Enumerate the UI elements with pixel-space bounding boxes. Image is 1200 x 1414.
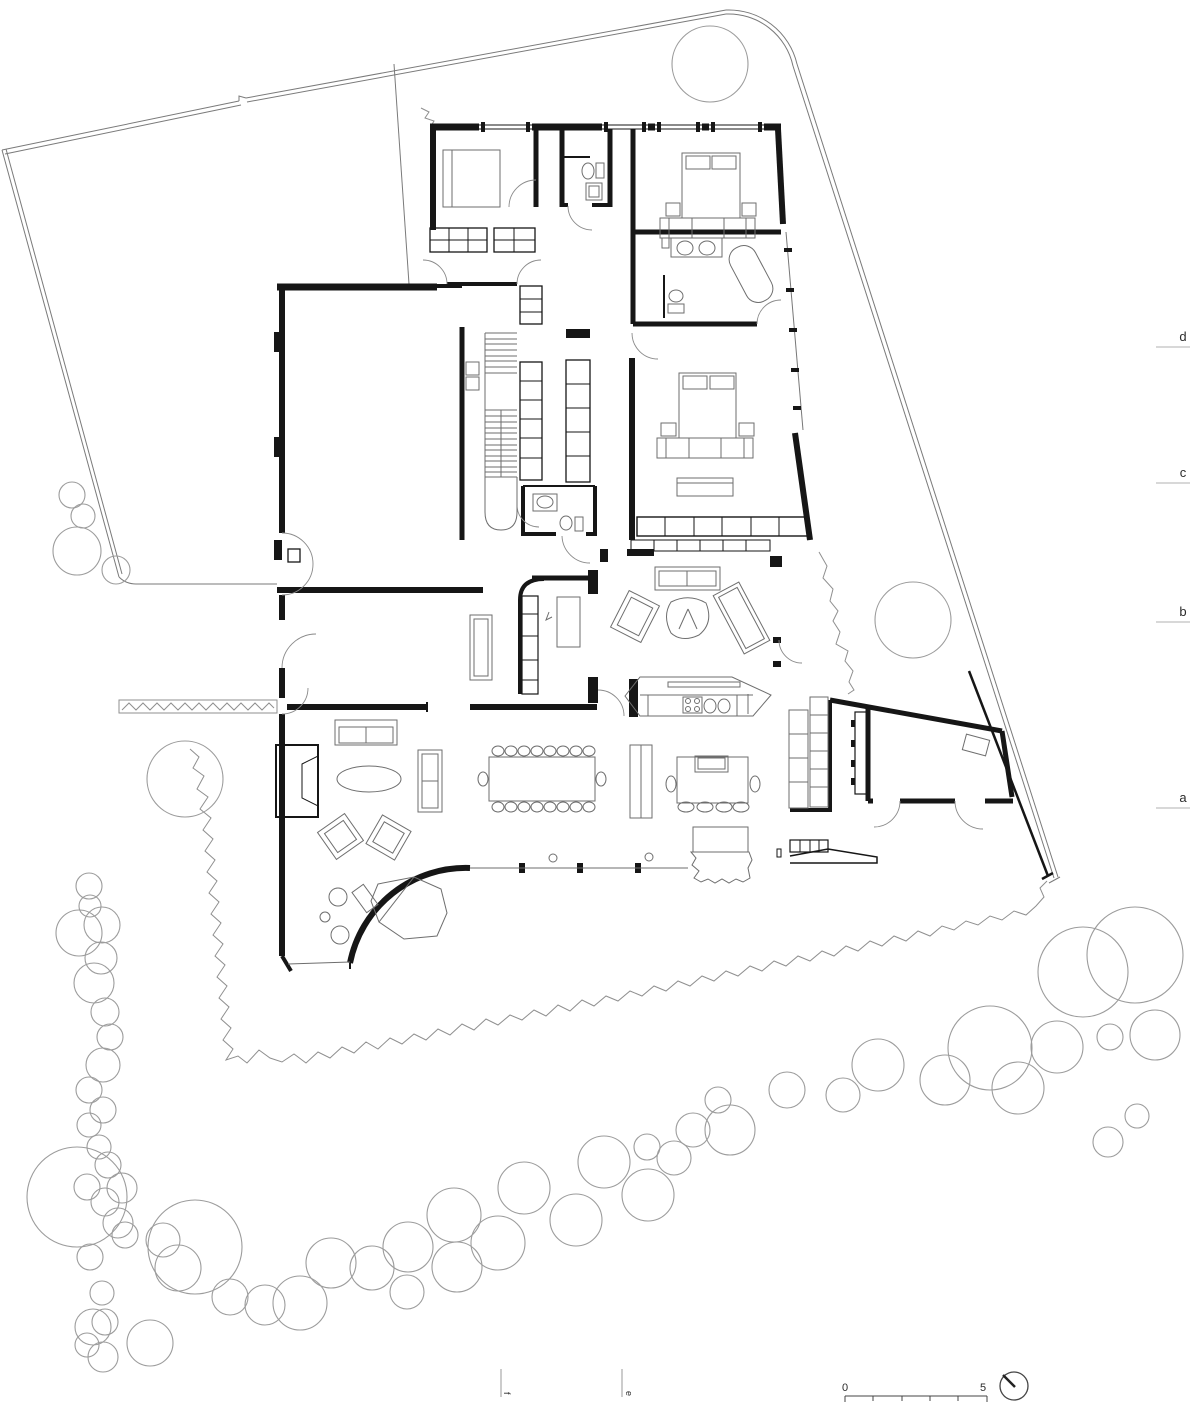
rug-oval (337, 766, 401, 792)
walls (777, 849, 781, 857)
stair-hall (485, 477, 517, 530)
stool (320, 912, 330, 922)
furniture (583, 746, 595, 756)
trees (578, 1136, 630, 1188)
stool (331, 926, 349, 944)
furniture (546, 612, 552, 620)
furniture (518, 746, 530, 756)
trees (622, 1169, 674, 1221)
bathtub (725, 241, 778, 307)
sideboard (470, 615, 492, 680)
trees (306, 1238, 356, 1288)
tree-entry (147, 741, 223, 817)
trees (76, 1077, 102, 1103)
trees (56, 910, 102, 956)
trees (102, 556, 130, 584)
trees (71, 504, 95, 528)
trees (53, 527, 101, 575)
section-label-e: e (624, 1391, 634, 1396)
bench (677, 478, 733, 496)
bed-foot-cabinet (657, 438, 753, 458)
spa-edge (691, 852, 752, 883)
site-boundary (793, 66, 1054, 878)
furniture (531, 746, 543, 756)
site-boundary (5, 105, 241, 154)
walls (786, 288, 794, 292)
trees (1130, 1010, 1180, 1060)
boundary-north (246, 10, 726, 98)
chaise (713, 582, 770, 654)
toilet (669, 290, 683, 302)
furniture (750, 776, 760, 792)
trees (432, 1242, 482, 1292)
furniture (589, 186, 599, 197)
furniture (695, 707, 700, 712)
tree-north (672, 26, 748, 102)
pantry-cabinet (810, 697, 828, 807)
door-swing (509, 180, 536, 207)
study-shelves (522, 596, 538, 694)
nightstand (739, 423, 754, 436)
furniture (662, 238, 669, 248)
furniture (666, 776, 676, 792)
door-swing (874, 801, 900, 827)
furniture (688, 609, 697, 629)
door-swing (562, 536, 590, 563)
dining-table (489, 757, 595, 801)
trees (148, 1200, 242, 1294)
trees (85, 942, 117, 974)
trees (155, 1245, 201, 1291)
trees (1031, 1021, 1083, 1073)
trees (550, 1194, 602, 1246)
walls (627, 549, 654, 556)
furniture (686, 707, 691, 712)
walls (642, 122, 646, 132)
garage-object (962, 734, 989, 756)
garage2-north-wall (830, 700, 1002, 731)
column (549, 854, 557, 862)
furniture (596, 772, 606, 786)
door-swing (423, 260, 447, 284)
trees (90, 1097, 116, 1123)
furniture (698, 758, 725, 769)
trees (948, 1006, 1032, 1090)
trees (852, 1039, 904, 1091)
island-handle (668, 682, 740, 687)
bed-north (682, 153, 740, 218)
armchair (318, 814, 364, 860)
section-label-c: c (1180, 465, 1187, 480)
furniture (570, 802, 582, 812)
site-boundary (6, 149, 122, 574)
spa (693, 827, 748, 852)
trees (88, 1342, 118, 1372)
floor-plan-drawing: dcba05fe (0, 0, 1200, 1414)
furniture (683, 376, 707, 389)
hedges (190, 108, 1047, 1063)
kitchen-table (677, 757, 748, 803)
desk (557, 597, 580, 647)
furniture (712, 156, 736, 169)
grand-piano (371, 877, 447, 939)
rug-triangle (667, 598, 709, 639)
nightstand (742, 203, 756, 216)
walls (758, 122, 762, 132)
sink (699, 241, 715, 255)
trees (1097, 1024, 1123, 1050)
trees (212, 1279, 248, 1315)
kitchen-sink (704, 699, 716, 713)
boundary-north-west (2, 101, 239, 150)
scale-zero: 0 (842, 1382, 848, 1394)
furniture (710, 376, 734, 389)
north-needle (1003, 1375, 1015, 1387)
boundary-foot (1049, 877, 1060, 883)
furniture (744, 438, 753, 458)
furniture (686, 156, 710, 169)
nightstand (661, 423, 676, 436)
toilet (582, 163, 594, 179)
furniture (466, 377, 479, 390)
garden-wall (969, 671, 1048, 876)
section-label-f: f (502, 1392, 512, 1395)
door-swing (568, 206, 592, 230)
furniture (686, 699, 691, 704)
walls (696, 122, 700, 132)
furniture (668, 304, 684, 313)
column (288, 549, 300, 562)
bed-foot-cabinet (660, 218, 755, 238)
door-swing (757, 300, 781, 324)
trees (350, 1246, 394, 1290)
trees (77, 1244, 103, 1270)
trees (992, 1062, 1044, 1114)
door-swing (598, 690, 624, 716)
walls (851, 778, 855, 785)
door-swing (517, 505, 539, 527)
pier (588, 677, 598, 703)
walls (851, 760, 855, 767)
trees (390, 1275, 424, 1309)
door-swing (632, 333, 658, 359)
furniture (575, 517, 583, 531)
furniture (544, 746, 556, 756)
trees (273, 1276, 327, 1330)
door-swing (779, 640, 802, 663)
walls (711, 122, 715, 132)
trees (74, 1174, 100, 1200)
trees (107, 1173, 137, 1203)
nightstand (666, 203, 680, 216)
walls (566, 329, 590, 338)
furniture (505, 746, 517, 756)
walls (784, 248, 792, 252)
walls (789, 328, 797, 332)
stool (329, 888, 347, 906)
walls (773, 661, 781, 667)
furniture (746, 218, 755, 238)
walkway-outline (119, 700, 277, 713)
trees (27, 26, 1183, 1372)
hedge-north-jag (421, 108, 438, 126)
furniture (288, 150, 990, 964)
trees (146, 1223, 180, 1257)
trees (634, 1134, 660, 1160)
closet (520, 286, 542, 324)
armchair (366, 815, 411, 860)
trees (471, 1216, 525, 1270)
dining-chair (492, 746, 504, 756)
walls (851, 740, 855, 747)
furniture (478, 772, 488, 786)
furniture (583, 802, 595, 812)
pilaster (274, 437, 282, 457)
furniture (657, 438, 666, 458)
boundary-west (2, 150, 119, 577)
furniture (695, 699, 700, 704)
section-label-d: d (1179, 329, 1186, 344)
site-boundary (247, 14, 726, 102)
entry-walkway (119, 700, 277, 713)
furniture (557, 802, 569, 812)
trees (97, 1024, 123, 1050)
walls (791, 368, 799, 372)
trees (705, 1105, 755, 1155)
boundary-east (797, 64, 1058, 877)
walls (600, 549, 608, 562)
kitchen-sink (718, 699, 730, 713)
walls (770, 556, 782, 567)
closet (520, 362, 542, 480)
pilaster (274, 540, 282, 560)
glass-wall (288, 962, 350, 964)
section-label-b: b (1179, 604, 1186, 619)
trees (112, 1222, 138, 1248)
walls (657, 122, 661, 132)
hedge-east (819, 552, 854, 694)
fence-line (394, 64, 409, 284)
trees (826, 1078, 860, 1112)
east-wing-wall (778, 129, 783, 224)
trees (1093, 1127, 1123, 1157)
walls (851, 720, 855, 727)
scale-five: 5 (980, 1382, 986, 1394)
tree-east-garden (875, 582, 951, 658)
door-swing (517, 260, 541, 284)
furniture (373, 822, 404, 853)
trees (1038, 927, 1128, 1017)
sink (677, 241, 693, 255)
furniture (518, 802, 530, 812)
trees (74, 963, 114, 1003)
walls (793, 406, 801, 410)
site-boundary (726, 14, 793, 66)
door-swing (282, 688, 308, 714)
trees (498, 1162, 550, 1214)
pier (588, 570, 598, 594)
pantry-cabinet (789, 710, 808, 808)
vanity (671, 238, 722, 257)
furniture (537, 496, 553, 508)
terrace-wall (790, 849, 877, 863)
walkway-hatch (122, 703, 274, 710)
annotations: dcba05fe (501, 329, 1190, 1402)
trees (245, 1285, 285, 1325)
trees (90, 1281, 114, 1305)
trees (705, 1087, 731, 1113)
trees (1125, 1104, 1149, 1128)
walls (274, 122, 1053, 971)
trees (79, 895, 101, 917)
firebox (302, 756, 318, 806)
walls (773, 637, 781, 643)
walls (604, 122, 608, 132)
window-jamb (481, 122, 485, 132)
furniture (466, 362, 479, 375)
trees (1087, 907, 1183, 1003)
furniture (570, 746, 582, 756)
trees (91, 998, 119, 1026)
column (645, 853, 653, 861)
pilaster (274, 332, 282, 352)
furniture (474, 619, 488, 676)
door-swing (282, 634, 316, 668)
furniture (505, 802, 517, 812)
trees (127, 1320, 173, 1366)
furniture (531, 802, 543, 812)
trees (769, 1072, 805, 1108)
boundary-step (239, 96, 246, 101)
shelf-column (855, 712, 867, 794)
furniture (660, 218, 669, 238)
furniture (544, 802, 556, 812)
plan-sheet: dcba05fe (0, 0, 1200, 1414)
section-label-a: a (1179, 790, 1187, 805)
furniture (557, 746, 569, 756)
furniture (596, 163, 604, 178)
toilet (560, 516, 572, 530)
walls (526, 122, 530, 132)
closet (566, 360, 590, 482)
door-swing (955, 801, 983, 829)
furniture (492, 802, 504, 812)
trees (91, 1188, 119, 1216)
trees (657, 1141, 691, 1175)
trees (77, 1113, 101, 1137)
trees (383, 1222, 433, 1272)
furniture (324, 820, 356, 852)
armchair (611, 591, 660, 643)
furniture (679, 609, 688, 629)
